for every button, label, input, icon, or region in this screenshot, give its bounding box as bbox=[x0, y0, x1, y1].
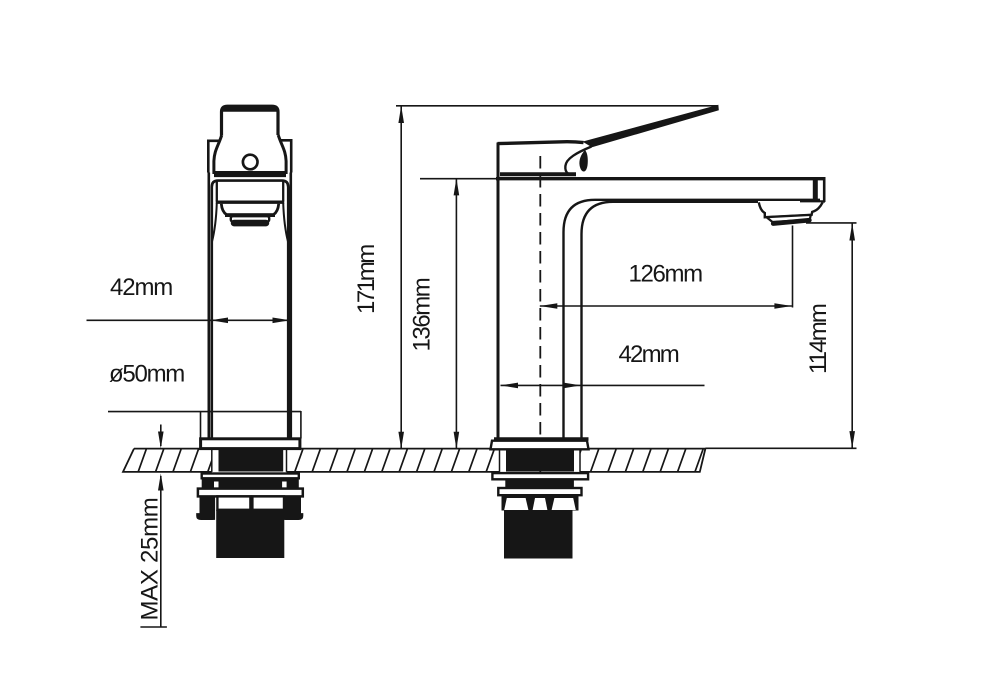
svg-text:114mm: 114mm bbox=[805, 303, 832, 374]
svg-text:42mm: 42mm bbox=[619, 341, 680, 368]
svg-text:126mm: 126mm bbox=[629, 261, 703, 288]
svg-text:42mm: 42mm bbox=[110, 274, 173, 301]
svg-text:171mm: 171mm bbox=[353, 244, 380, 314]
svg-text:136mm: 136mm bbox=[409, 278, 436, 352]
svg-text:ø50mm: ø50mm bbox=[109, 361, 185, 388]
svg-text:MAX 25mm: MAX 25mm bbox=[137, 498, 164, 621]
